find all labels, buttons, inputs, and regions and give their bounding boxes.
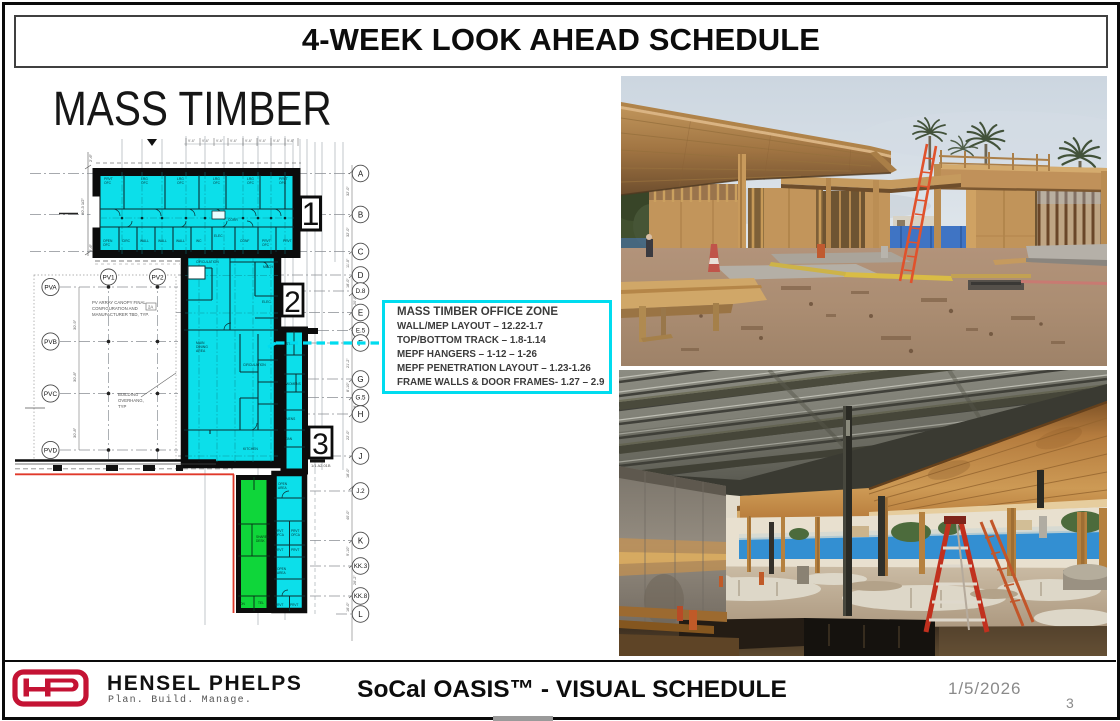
- svg-text:OFC: OFC: [247, 181, 255, 185]
- svg-text:30'-9": 30'-9": [72, 319, 77, 330]
- svg-text:D.8: D.8: [356, 288, 366, 295]
- svg-text:PRVT: PRVT: [283, 239, 292, 243]
- svg-text:9'-6": 9'-6": [202, 139, 210, 143]
- svg-text:CORR: CORR: [228, 218, 238, 222]
- svg-text:9'-6": 9'-6": [230, 139, 238, 143]
- svg-text:PRVT: PRVT: [290, 603, 298, 607]
- svg-text:ELEC: ELEC: [262, 300, 271, 304]
- svg-text:8'-10": 8'-10": [346, 382, 350, 392]
- svg-text:OVERHANG,: OVERHANG,: [118, 398, 144, 403]
- svg-text:AREA: AREA: [277, 571, 287, 575]
- svg-text:G: G: [357, 375, 363, 384]
- svg-text:BUILDING: BUILDING: [118, 392, 139, 397]
- svg-text:K: K: [358, 537, 364, 546]
- svg-text:30'-8": 30'-8": [72, 427, 77, 438]
- svg-text:H: H: [358, 410, 364, 419]
- svg-text:OFC: OFC: [213, 181, 221, 185]
- svg-text:DESK: DESK: [256, 539, 266, 543]
- svg-text:1: 1: [302, 196, 320, 232]
- svg-text:OFC: OFC: [279, 181, 287, 185]
- svg-text:PVD: PVD: [44, 447, 58, 454]
- svg-text:9'-6": 9'-6": [259, 139, 267, 143]
- svg-text:CIRCULATION: CIRCULATION: [196, 260, 219, 264]
- svg-text:PV2: PV2: [151, 274, 164, 281]
- svg-text:PRVT: PRVT: [291, 548, 299, 552]
- svg-text:J.2: J.2: [356, 488, 365, 495]
- svg-text:WALL: WALL: [158, 239, 167, 243]
- svg-text:OFCA: OFCA: [291, 533, 301, 537]
- svg-text:G.5: G.5: [356, 395, 367, 402]
- svg-text:OFC: OFC: [103, 243, 111, 247]
- svg-text:18'-0": 18'-0": [346, 468, 350, 478]
- svg-text:2'-6": 2'-6": [88, 243, 93, 252]
- svg-text:KITCHEN: KITCHEN: [243, 447, 258, 451]
- svg-text:MENS: MENS: [286, 417, 295, 421]
- svg-text:9'-6": 9'-6": [188, 139, 196, 143]
- svg-text:CIRC: CIRC: [122, 239, 131, 243]
- svg-text:22'-0": 22'-0": [346, 430, 350, 440]
- svg-text:1/1 A2.01B: 1/1 A2.01B: [311, 463, 331, 468]
- svg-text:J: J: [359, 452, 363, 461]
- svg-text:9'-6": 9'-6": [245, 139, 253, 143]
- svg-text:PRVT: PRVT: [275, 603, 283, 607]
- svg-text:OFC: OFC: [104, 181, 112, 185]
- svg-text:WALL: WALL: [176, 239, 185, 243]
- svg-text:2: 2: [284, 286, 301, 319]
- svg-text:16'-0": 16'-0": [346, 602, 350, 612]
- svg-text:3: 3: [312, 428, 329, 461]
- svg-text:90'-3 1/2": 90'-3 1/2": [80, 198, 85, 215]
- svg-text:WC: WC: [196, 239, 202, 243]
- svg-text:9'-6": 9'-6": [216, 139, 224, 143]
- svg-text:30'-8": 30'-8": [72, 371, 77, 382]
- svg-text:PV1: PV1: [102, 274, 115, 281]
- svg-text:KK.8: KK.8: [354, 593, 368, 600]
- svg-text:40'-0": 40'-0": [346, 510, 350, 520]
- svg-text:26'-2": 26'-2": [353, 575, 357, 585]
- svg-text:JAN: JAN: [286, 437, 293, 441]
- svg-text:OFC: OFC: [177, 181, 185, 185]
- svg-text:18'-0": 18'-0": [346, 278, 350, 288]
- svg-text:ELEC: ELEC: [214, 234, 223, 238]
- svg-text:9'-10": 9'-10": [346, 546, 350, 556]
- svg-text:PV ARRAY CANOPY FINAL: PV ARRAY CANOPY FINAL: [92, 300, 146, 305]
- svg-text:PRVT: PRVT: [275, 548, 283, 552]
- svg-text:2'-6": 2'-6": [88, 153, 93, 162]
- svg-text:OFC: OFC: [262, 243, 270, 247]
- svg-text:AREA: AREA: [196, 349, 206, 353]
- svg-text:OFC: OFC: [141, 181, 149, 185]
- svg-text:PVB: PVB: [44, 339, 57, 346]
- svg-text:CIRCULATION: CIRCULATION: [243, 363, 266, 367]
- svg-text:PVA: PVA: [44, 284, 57, 291]
- svg-text:32'-0": 32'-0": [346, 186, 350, 196]
- svg-text:CONFIGURATION AND: CONFIGURATION AND: [92, 306, 138, 311]
- svg-text:A: A: [358, 170, 364, 179]
- svg-text:L: L: [358, 610, 363, 619]
- svg-text:ON: ON: [240, 602, 245, 606]
- svg-text:OFCA: OFCA: [275, 533, 285, 537]
- svg-text:D: D: [358, 271, 364, 280]
- svg-text:9'-6": 9'-6": [273, 139, 281, 143]
- svg-text:AREA: AREA: [278, 486, 288, 490]
- svg-text:KK.3: KK.3: [354, 563, 368, 570]
- svg-text:CONF: CONF: [240, 239, 249, 243]
- svg-text:2A: 2A: [148, 305, 153, 310]
- svg-text:E: E: [358, 309, 363, 318]
- svg-text:TEL: TEL: [258, 601, 264, 605]
- svg-text:WOMENS: WOMENS: [286, 382, 301, 386]
- svg-text:PVC: PVC: [44, 391, 58, 398]
- svg-text:B: B: [358, 211, 363, 220]
- svg-text:E.5: E.5: [356, 328, 366, 335]
- svg-text:21'-2": 21'-2": [346, 358, 350, 368]
- svg-text:MANUFACTURER TBD, TYP.: MANUFACTURER TBD, TYP.: [92, 312, 149, 317]
- svg-text:MECH: MECH: [263, 265, 274, 269]
- svg-text:WALL: WALL: [140, 239, 149, 243]
- svg-text:TYP: TYP: [118, 404, 126, 409]
- svg-text:11'-0": 11'-0": [346, 258, 350, 268]
- svg-text:9'-6": 9'-6": [287, 139, 295, 143]
- svg-text:C: C: [358, 248, 364, 257]
- svg-text:32'-0": 32'-0": [346, 227, 350, 237]
